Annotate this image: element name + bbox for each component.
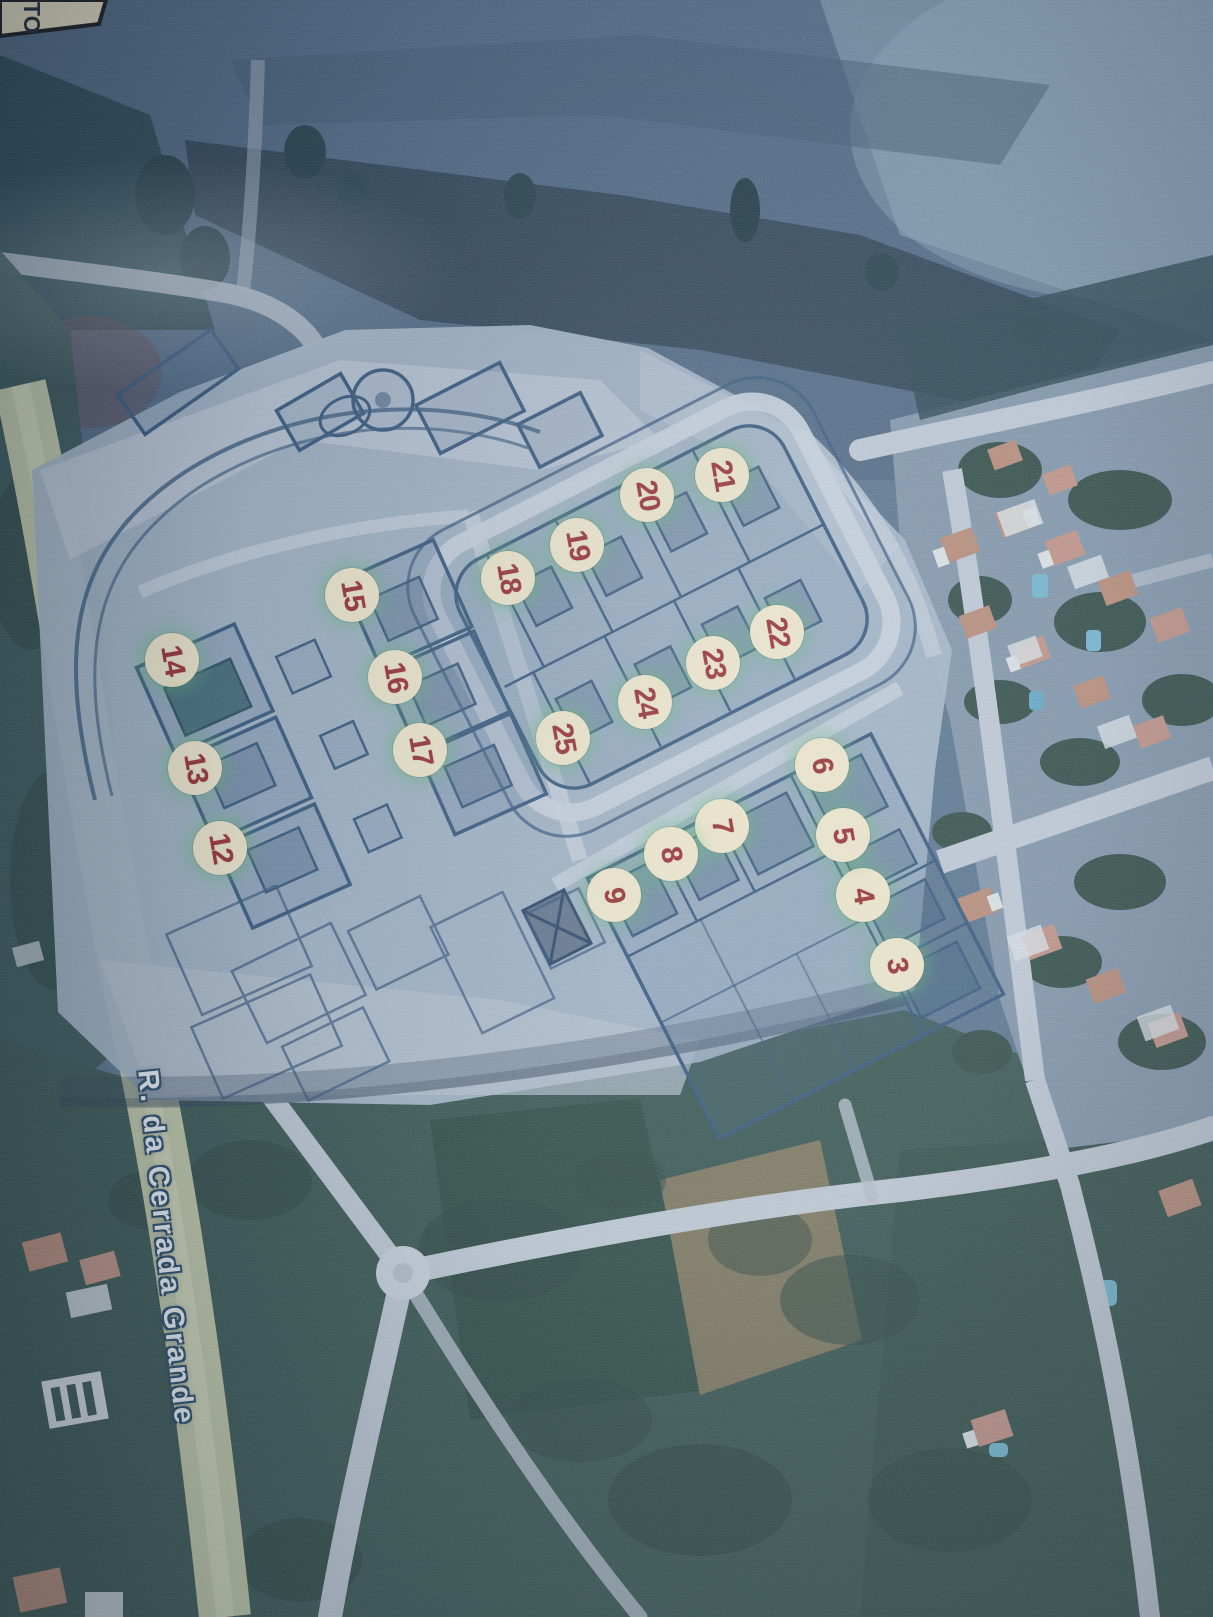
lot-marker-number: 5 <box>825 825 860 846</box>
lot-marker-5: 5 <box>816 808 870 862</box>
lot-marker-number: 25 <box>544 720 582 756</box>
lot-marker-number: 21 <box>703 457 741 493</box>
lot-marker-number: 14 <box>153 642 191 678</box>
lot-marker-9: 9 <box>587 868 641 922</box>
lot-marker-4: 4 <box>836 868 890 922</box>
lot-marker-23: 23 <box>686 636 740 690</box>
lot-marker-17: 17 <box>393 723 447 777</box>
lot-marker-number: 6 <box>804 755 839 776</box>
lot-marker-13: 13 <box>168 741 222 795</box>
lot-marker-number: 20 <box>628 477 666 513</box>
lot-marker-15: 15 <box>325 568 379 622</box>
lot-marker-number: 8 <box>653 844 688 865</box>
lot-marker-number: 17 <box>401 732 439 768</box>
lot-marker-20: 20 <box>620 468 674 522</box>
lot-marker-number: 22 <box>758 614 796 650</box>
lot-marker-number: 15 <box>333 577 371 613</box>
lot-marker-number: 12 <box>201 830 239 866</box>
lot-marker-number: 24 <box>626 684 664 720</box>
lot-marker-number: 4 <box>845 885 880 906</box>
lot-marker-16: 16 <box>368 650 422 704</box>
lot-marker-18: 18 <box>481 551 535 605</box>
lot-marker-number: 13 <box>176 750 214 786</box>
lot-marker-22: 22 <box>750 605 804 659</box>
lot-marker-12: 12 <box>193 821 247 875</box>
lot-marker-21: 21 <box>695 448 749 502</box>
lot-marker-3: 3 <box>870 938 924 992</box>
lot-marker-6: 6 <box>795 738 849 792</box>
lot-marker-number: 9 <box>596 885 631 906</box>
lot-marker-8: 8 <box>644 827 698 881</box>
lot-marker-number: 7 <box>704 816 739 837</box>
lot-marker-24: 24 <box>618 675 672 729</box>
aerial-photo: TO 34567891213141516171819202122232425 R… <box>0 0 1213 1617</box>
lot-marker-19: 19 <box>550 518 604 572</box>
lot-marker-number: 3 <box>879 955 914 976</box>
lot-marker-number: 19 <box>558 527 596 563</box>
lot-marker-number: 16 <box>376 659 414 695</box>
lot-marker-14: 14 <box>145 633 199 687</box>
lot-marker-25: 25 <box>536 711 590 765</box>
lot-marker-number: 23 <box>694 645 732 681</box>
lot-marker-number: 18 <box>489 560 527 596</box>
lot-marker-7: 7 <box>695 799 749 853</box>
